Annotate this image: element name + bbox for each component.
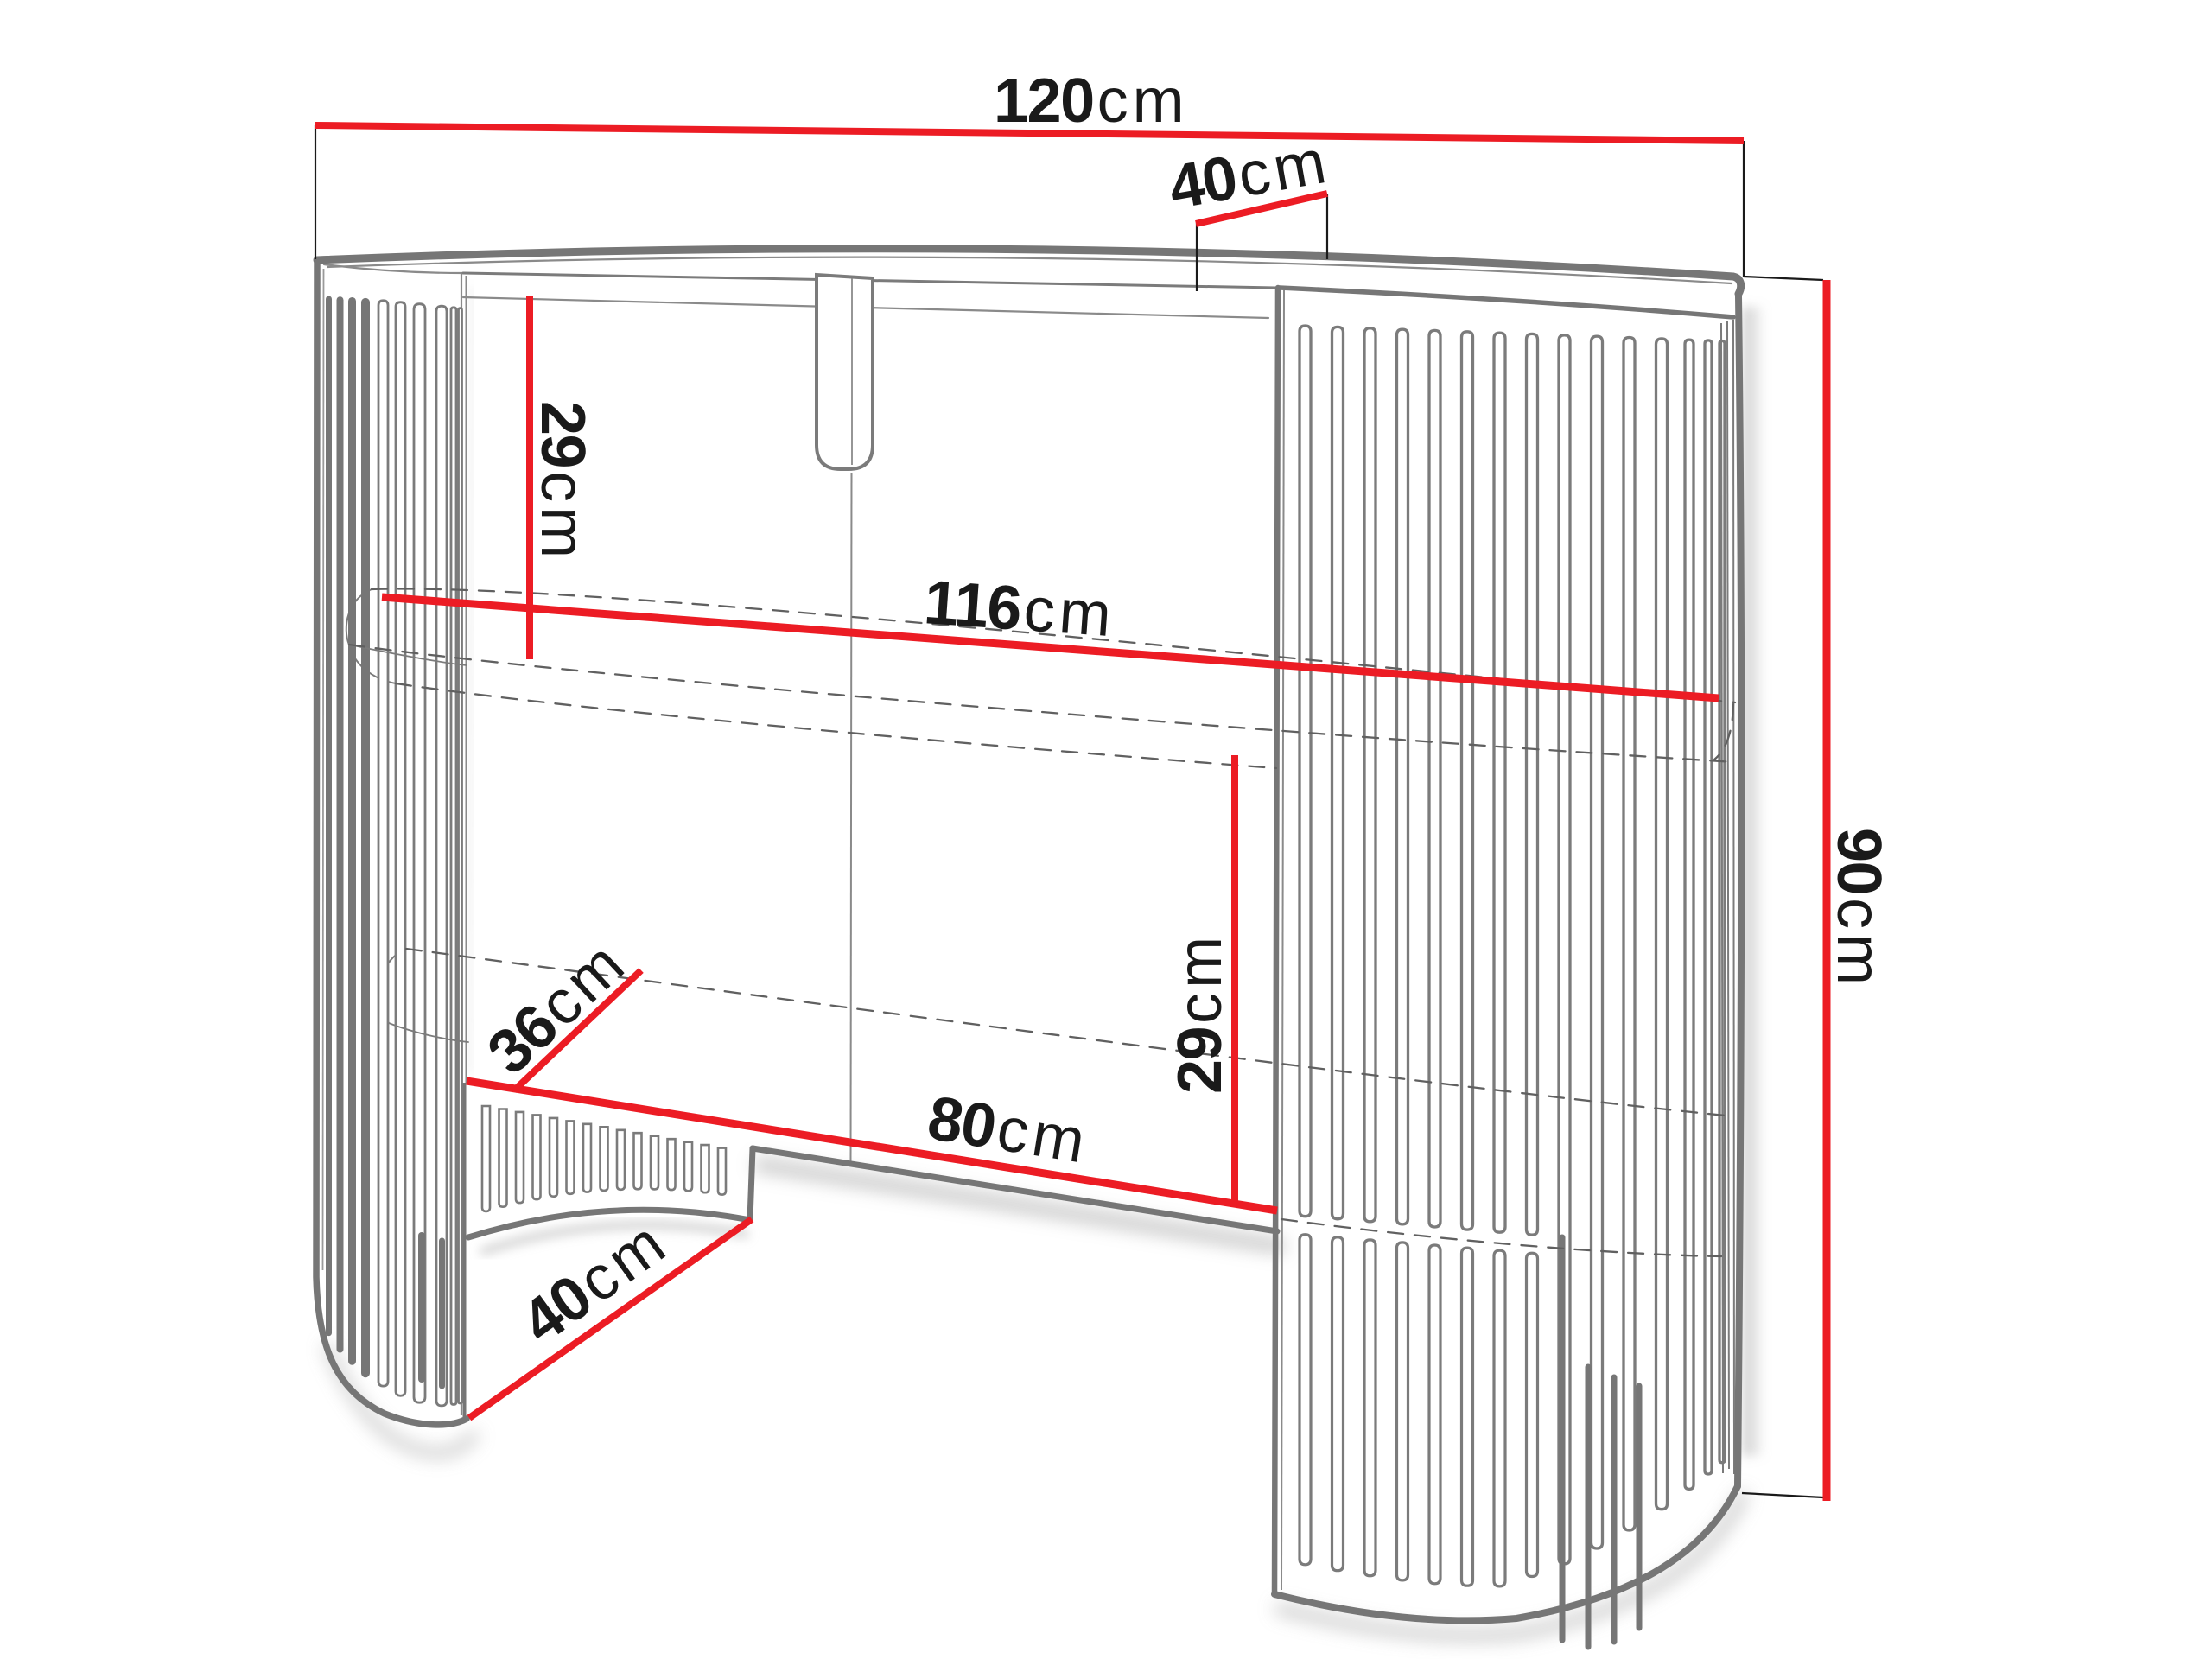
svg-text:29cm: 29cm bbox=[1166, 932, 1235, 1094]
svg-text:90cm: 90cm bbox=[1824, 828, 1893, 989]
svg-text:29cm: 29cm bbox=[528, 401, 597, 563]
svg-text:120cm: 120cm bbox=[994, 67, 1189, 136]
